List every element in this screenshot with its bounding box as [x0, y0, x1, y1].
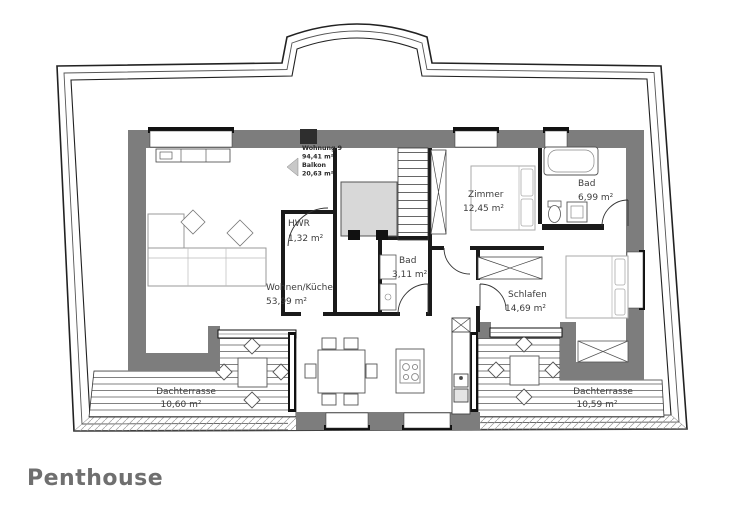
pillow [615, 259, 625, 285]
stair-post [376, 230, 388, 240]
wall-south-bay [296, 412, 480, 430]
terrace-table [510, 356, 539, 385]
window-zimmer-north [455, 131, 497, 147]
label-bad-area: 6,99 m² [578, 193, 614, 203]
sofa [148, 248, 266, 286]
dining-chair [344, 394, 358, 405]
window-schlafen-east [627, 252, 643, 308]
floor-plan-drawing: Dachterrasse 10,60 m² Dachterrasse 10,59… [0, 0, 750, 520]
kitchen-sink [454, 374, 468, 387]
terrace-right-area: 10,59 m² [576, 400, 617, 410]
tag-balcony: Balkon [302, 162, 326, 169]
pillow [521, 169, 533, 196]
label-bad-name: Bad [578, 179, 595, 189]
terrace-table [238, 358, 267, 387]
dining-chair [344, 338, 358, 349]
label-schlafen-name: Schlafen [508, 290, 547, 300]
toilet [549, 206, 561, 223]
window-bay-south-2 [404, 413, 450, 428]
dining-chair [322, 338, 336, 349]
label-hwr-area: 1,32 m² [288, 234, 324, 244]
floor-plan-page: Dachterrasse 10,60 m² Dachterrasse 10,59… [0, 0, 750, 520]
shower [380, 284, 396, 310]
wall-south-west [128, 353, 220, 371]
label-wohnen-area: 53,99 m² [266, 297, 307, 307]
stair-treads [398, 148, 428, 240]
terrace-right-name: Dachterrasse [573, 387, 633, 397]
terrace-left-area: 10,60 m² [160, 400, 201, 410]
window-bay-south-1 [326, 413, 368, 428]
window-living-north [150, 131, 232, 147]
terrace-left-name: Dachterrasse [156, 387, 216, 397]
label-schlafen-area: 14,69 m² [505, 304, 546, 314]
label-zimmer-name: Zimmer [468, 190, 504, 200]
wall-west [128, 130, 146, 371]
label-zimmer-area: 12,45 m² [463, 204, 504, 214]
label-hwr-name: HWR [288, 219, 310, 229]
washbasin [567, 202, 587, 222]
wall-east [626, 130, 644, 368]
tv [160, 152, 172, 159]
dining-chair [366, 364, 377, 378]
wall-pier-arch [300, 129, 317, 144]
label-wohnen-name: Wohnen/Küche [266, 283, 333, 293]
dining-chair [322, 394, 336, 405]
wall-closet-south [560, 362, 644, 380]
pillow [521, 199, 533, 226]
tag-unit: Wohnung 9 [302, 145, 342, 152]
dishwasher [454, 389, 468, 402]
tag-balcony-area: 20,63 m² [302, 171, 334, 178]
pillow [615, 289, 625, 315]
window-bad-north [545, 131, 567, 147]
dining-table [318, 350, 365, 393]
elevator-shaft [341, 182, 397, 236]
dining-chair [305, 364, 316, 378]
tag-unit-area: 94,41 m² [302, 154, 334, 161]
label-bad-small-area: 3,11 m² [392, 270, 428, 280]
label-bad-small-name: Bad [399, 256, 416, 266]
stair-post [348, 230, 360, 240]
page-title: Penthouse [27, 466, 163, 491]
